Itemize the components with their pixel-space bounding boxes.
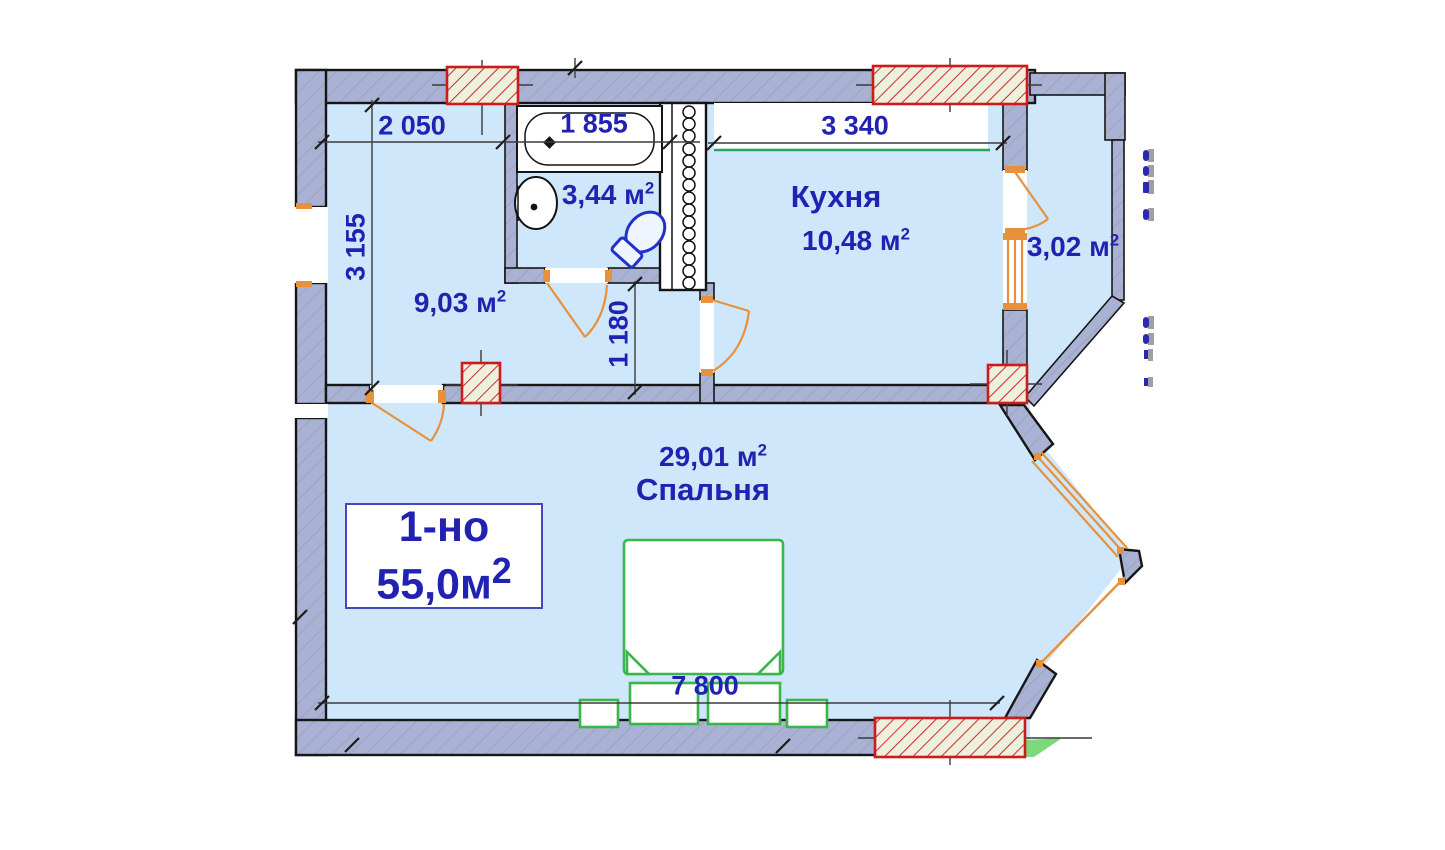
dim-apartment-width: 7 800	[671, 671, 739, 702]
kitchen-area-sup: 2	[901, 225, 910, 244]
bathroom-area-value: 3,44 м	[562, 179, 645, 210]
apartment-title-box: 1-но 55,0м2	[345, 503, 543, 609]
balcony-area-sup: 2	[1110, 231, 1119, 250]
dim-hallway-width: 2 050	[378, 111, 446, 142]
hallway-area-value: 9,03 м	[414, 287, 497, 318]
balcony-area-label: 3,02 м2	[1027, 231, 1119, 263]
bedroom-area-sup: 2	[758, 441, 767, 460]
hallway-area-label: 9,03 м2	[414, 287, 506, 319]
apartment-total-area-value: 55,0м	[376, 561, 492, 609]
bedroom-area-label: 29,01 м2	[659, 441, 767, 473]
dim-hallway-depth: 3 155	[341, 213, 372, 281]
apartment-total-area: 55,0м2	[376, 551, 511, 608]
vent-shaft	[660, 103, 706, 290]
floor-plan-canvas: 2 050 1 855 3 340 3 155 1 180 7 800 9,03…	[0, 0, 1445, 850]
corner-green-accent	[1026, 738, 1062, 757]
kitchen-area-label: 10,48 м2	[802, 225, 910, 257]
dim-kitchen-width: 3 340	[821, 111, 889, 142]
sink	[515, 177, 557, 229]
kitchen-name-label: Кухня	[791, 179, 882, 215]
dim-corridor-width: 1 180	[604, 300, 635, 368]
apartment-floor-plan: 2 050 1 855 3 340 3 155 1 180 7 800 9,03…	[0, 0, 1445, 850]
bedroom-area-value: 29,01 м	[659, 441, 758, 472]
hallway-area-sup: 2	[497, 287, 506, 306]
apartment-type: 1-но	[399, 503, 489, 551]
apartment-total-area-sup: 2	[492, 551, 512, 591]
edge-text-fragments	[1143, 149, 1154, 387]
dim-bathtub-length: 1 855	[560, 109, 628, 140]
balcony-area-value: 3,02 м	[1027, 231, 1110, 262]
bathroom-area-label: 3,44 м2	[562, 179, 654, 211]
kitchen-area-value: 10,48 м	[802, 225, 901, 256]
bedroom-name-label: Спальня	[636, 472, 770, 508]
plan-drawing	[0, 0, 1445, 850]
bathroom-area-sup: 2	[645, 179, 654, 198]
balcony-window	[1003, 233, 1027, 310]
bed	[624, 540, 783, 674]
